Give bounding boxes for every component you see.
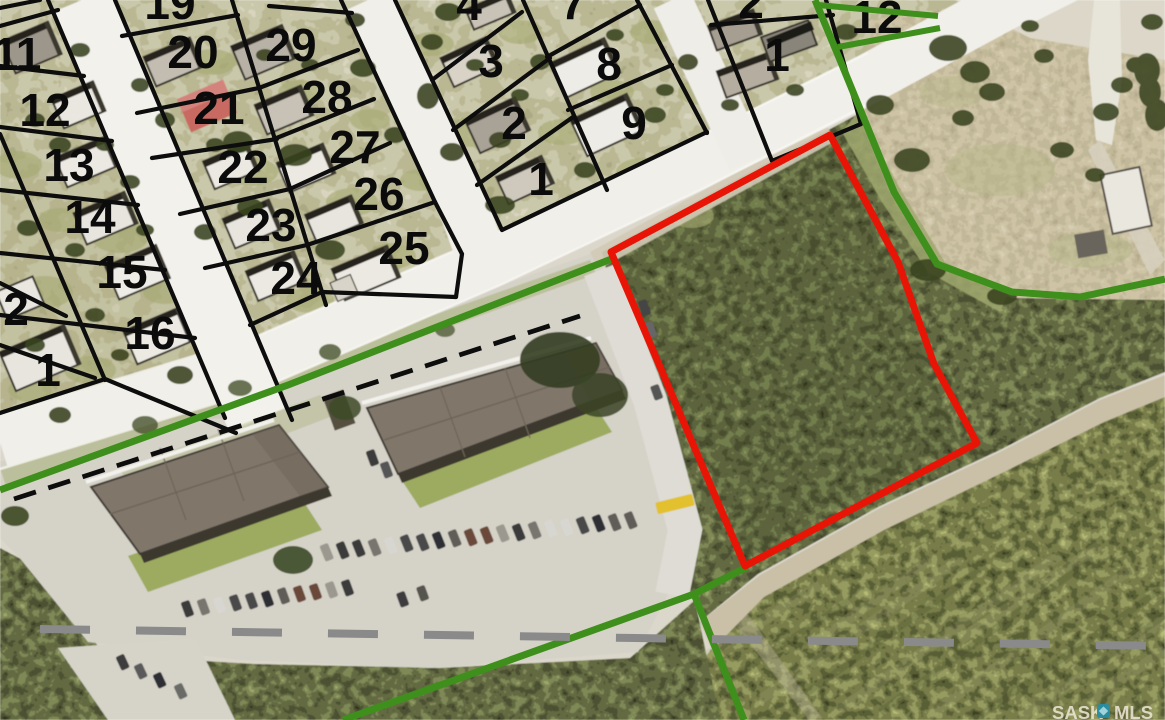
svg-text:SASK: SASK: [1052, 702, 1104, 720]
svg-text:23: 23: [245, 199, 296, 251]
svg-text:1: 1: [35, 344, 61, 396]
svg-text:26: 26: [353, 168, 404, 220]
svg-text:12: 12: [19, 84, 70, 136]
svg-text:1: 1: [764, 29, 790, 81]
svg-text:13: 13: [43, 139, 94, 191]
svg-text:3: 3: [478, 35, 504, 87]
svg-text:29: 29: [265, 19, 316, 71]
svg-text:7: 7: [560, 0, 586, 29]
svg-text:4: 4: [456, 0, 482, 30]
svg-text:21: 21: [193, 82, 244, 134]
svg-text:27: 27: [329, 121, 380, 173]
svg-text:15: 15: [96, 246, 147, 298]
svg-text:2: 2: [738, 0, 764, 28]
svg-text:22: 22: [217, 141, 268, 193]
svg-text:24: 24: [270, 252, 322, 304]
svg-text:9: 9: [621, 97, 647, 149]
svg-text:14: 14: [64, 191, 116, 243]
svg-text:2: 2: [3, 283, 29, 335]
svg-text:8: 8: [596, 38, 622, 90]
svg-text:2: 2: [501, 97, 527, 149]
svg-text:MLS: MLS: [1114, 702, 1153, 720]
svg-text:11: 11: [0, 28, 41, 80]
svg-text:20: 20: [167, 26, 218, 78]
svg-text:19: 19: [144, 0, 195, 29]
svg-text:25: 25: [378, 222, 429, 274]
svg-text:1: 1: [528, 153, 554, 205]
svg-text:16: 16: [124, 307, 175, 359]
svg-text:28: 28: [301, 71, 352, 123]
